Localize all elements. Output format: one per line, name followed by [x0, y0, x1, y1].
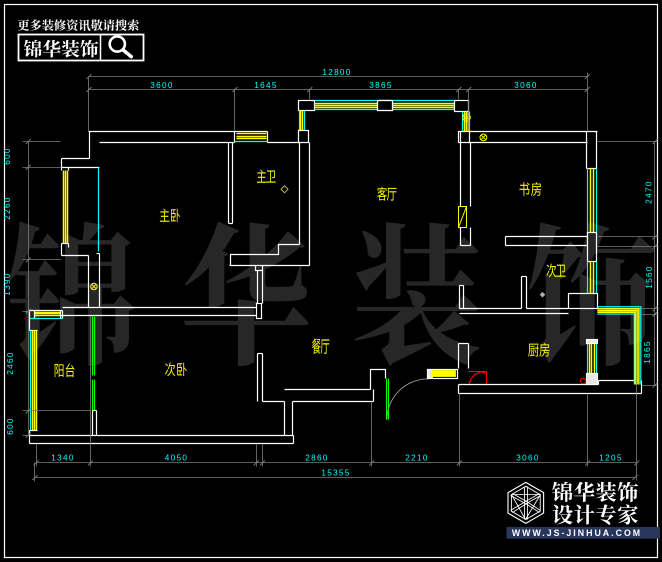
- svg-text:2210: 2210: [405, 454, 428, 463]
- svg-text:1645: 1645: [254, 81, 277, 90]
- svg-text:4050: 4050: [165, 454, 188, 463]
- svg-text:2470: 2470: [645, 180, 654, 203]
- svg-text:15355: 15355: [321, 469, 350, 478]
- svg-text:600: 600: [6, 417, 15, 435]
- svg-text:1390: 1390: [3, 272, 12, 295]
- svg-text:1560: 1560: [645, 265, 654, 288]
- svg-text:1205: 1205: [599, 454, 622, 463]
- svg-text:3865: 3865: [369, 81, 392, 90]
- svg-text:2860: 2860: [305, 454, 328, 463]
- svg-text:3060: 3060: [516, 454, 539, 463]
- svg-text:12800: 12800: [322, 68, 351, 77]
- svg-text:1340: 1340: [51, 454, 74, 463]
- svg-text:3060: 3060: [514, 81, 537, 90]
- svg-text:2460: 2460: [6, 351, 15, 374]
- svg-text:3600: 3600: [150, 81, 173, 90]
- svg-text:600: 600: [3, 147, 12, 165]
- svg-text:2260: 2260: [3, 196, 12, 219]
- svg-text:1865: 1865: [643, 340, 652, 363]
- svg-text:WWW.JS-JINHUA.COM: WWW.JS-JINHUA.COM: [512, 528, 642, 538]
